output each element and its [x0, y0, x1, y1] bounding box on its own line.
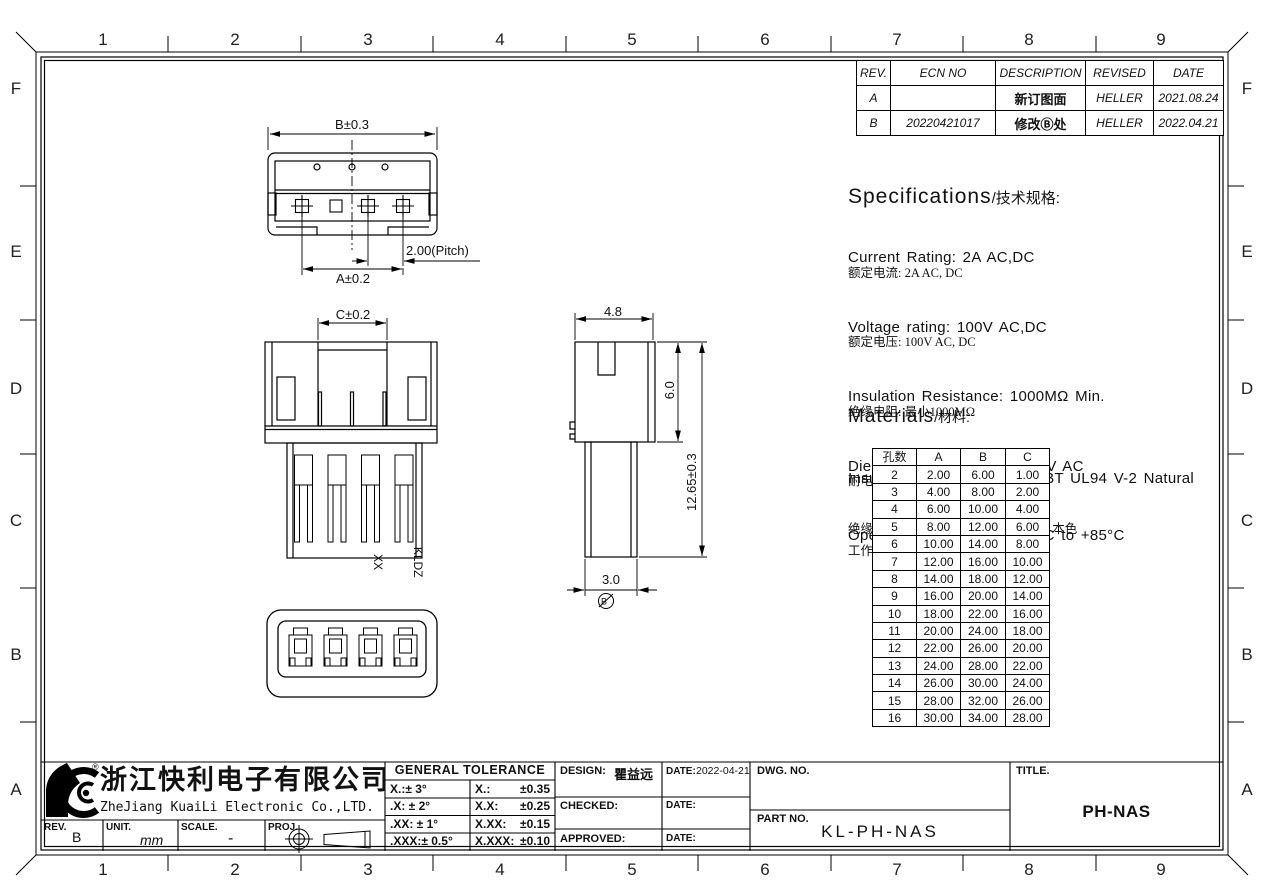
- cell: 14.00: [961, 535, 1006, 552]
- cell: 26.00: [917, 675, 961, 692]
- spec-cn: 额定电流: 2A AC, DC: [848, 267, 1243, 281]
- cell: 8: [873, 570, 917, 587]
- col-header: DATE: [1154, 61, 1224, 86]
- cell: 4.00: [1006, 501, 1050, 518]
- cell: [891, 86, 996, 111]
- zone-col-top: 2: [224, 31, 246, 50]
- cell: 2: [873, 466, 917, 483]
- cell: 34.00: [961, 709, 1006, 726]
- cell: 6.00: [1006, 518, 1050, 535]
- cell: 22.00: [961, 605, 1006, 622]
- tolerance-linear-value: ±0.35: [505, 783, 550, 796]
- zone-col-top: 3: [357, 31, 379, 50]
- design-value: 瞿益远: [614, 768, 653, 782]
- housing-mark-line2: XX: [371, 532, 384, 592]
- cell: 26.00: [1006, 692, 1050, 709]
- cell: 10: [873, 605, 917, 622]
- cell: 16.00: [961, 553, 1006, 570]
- table-row: 610.0014.008.00: [873, 535, 1050, 552]
- rev-label: REV.: [44, 822, 66, 833]
- dim-label-b: B±0.3: [322, 118, 382, 132]
- zone-col-bottom: 2: [224, 861, 246, 880]
- zone-col-top: 7: [886, 31, 908, 50]
- table-row: 1018.0022.0016.00: [873, 605, 1050, 622]
- table-row: 712.0016.0010.00: [873, 553, 1050, 570]
- cell: 14.00: [1006, 588, 1050, 605]
- zone-col-top: 9: [1150, 31, 1172, 50]
- cell: 12.00: [917, 553, 961, 570]
- proj-label: PROJ.: [268, 822, 298, 833]
- cell: 15: [873, 692, 917, 709]
- cell: A: [857, 86, 891, 111]
- cell: 24.00: [1006, 675, 1050, 692]
- company-name-en: ZheJiang KuaiLi Electronic Co.,LTD.: [100, 801, 374, 815]
- design-label: DESIGN:: [560, 765, 606, 777]
- zone-row-right: A: [1236, 781, 1258, 800]
- cell: 30.00: [961, 675, 1006, 692]
- cell: 2022.04.21: [1154, 111, 1224, 136]
- cell: 2.00: [1006, 483, 1050, 500]
- title-label: TITLE.: [1016, 765, 1050, 777]
- cell: 32.00: [961, 692, 1006, 709]
- design-date: 2022-04-21: [696, 766, 750, 778]
- tolerance-linear-label: X.:: [475, 783, 490, 796]
- drawing-title: PH-NAS: [1010, 803, 1223, 822]
- col-header: C: [1006, 449, 1050, 466]
- revision-table: REV. ECN NO DESCRIPTION REVISED DATE A 新…: [856, 60, 1224, 136]
- tolerance-angle: .XXX:± 0.5°: [390, 835, 453, 848]
- table-row: 34.008.002.00: [873, 483, 1050, 500]
- dim-label-c: C±0.2: [328, 308, 378, 322]
- zone-row-left: F: [5, 80, 27, 99]
- zone-col-top: 1: [92, 31, 114, 50]
- cell: 20.00: [917, 622, 961, 639]
- company-name-cn: 浙江快利电子有限公司: [100, 766, 390, 796]
- revision-row: A 新订图面 HELLER 2021.08.24: [857, 86, 1224, 111]
- tolerance-angle: .XX: ± 1°: [390, 818, 438, 831]
- dim-label-total-height: 12.65±0.3: [685, 442, 699, 522]
- housing-mark: KLDZ XX: [358, 532, 450, 592]
- zone-col-bottom: 6: [754, 861, 776, 880]
- col-header: B: [961, 449, 1006, 466]
- zone-row-left: E: [5, 243, 27, 262]
- cell: 20220421017: [891, 111, 996, 136]
- cell: HELLER: [1086, 86, 1154, 111]
- bottom-view-drawing: [267, 610, 437, 697]
- registered-mark: ®: [92, 763, 99, 773]
- drawing-sheet: B 1 2 3 4 5 6 7 8 9 1 2 3 4 5 6 7 8 9 F …: [0, 0, 1262, 892]
- spec-en: Current Rating: 2A AC,DC: [848, 250, 1243, 267]
- col-header: A: [917, 449, 961, 466]
- dim-label-a: A±0.2: [328, 272, 378, 286]
- col-header: REVISED: [1086, 61, 1154, 86]
- date-label: DATE:: [666, 833, 696, 844]
- spec-item: Current Rating: 2A AC,DC额定电流: 2A AC, DC: [848, 250, 1243, 280]
- cell: 16: [873, 709, 917, 726]
- tolerance-angle: .X: ± 2°: [390, 800, 430, 813]
- dim-label-top-width: 4.8: [598, 305, 628, 319]
- cell: 30.00: [917, 709, 961, 726]
- zone-row-left: C: [5, 512, 27, 531]
- cell: 2.00: [917, 466, 961, 483]
- date-label: DATE:: [666, 800, 696, 811]
- cell: 8.00: [917, 518, 961, 535]
- zone-col-bottom: 3: [357, 861, 379, 880]
- rev-value: B: [72, 830, 81, 845]
- zone-col-top: 4: [489, 31, 511, 50]
- zone-row-right: F: [1236, 80, 1258, 99]
- balloon-letter: B: [601, 597, 607, 607]
- cell: 2021.08.24: [1154, 86, 1224, 111]
- materials-title: Materials/材料:: [848, 407, 1248, 428]
- tolerance-linear-value: ±0.15: [505, 818, 550, 831]
- col-header: 孔数: [873, 449, 917, 466]
- zone-col-top: 5: [621, 31, 643, 50]
- table-row: 1324.0028.0022.00: [873, 657, 1050, 674]
- specs-title-en: Specifications: [848, 185, 992, 208]
- col-header: ECN NO: [891, 61, 996, 86]
- tolerance-angle: X.:± 3°: [390, 783, 427, 796]
- checked-label: CHECKED:: [560, 800, 618, 812]
- zone-col-bottom: 4: [489, 861, 511, 880]
- cell: 20.00: [1006, 640, 1050, 657]
- cell: 新订图面: [996, 86, 1086, 111]
- scale-label: SCALE.: [181, 822, 218, 833]
- dim-label-pitch: 2.00(Pitch): [406, 244, 486, 258]
- cell: 11: [873, 622, 917, 639]
- cell: 14.00: [917, 570, 961, 587]
- table-row: 58.0012.006.00: [873, 518, 1050, 535]
- zone-col-bottom: 5: [621, 861, 643, 880]
- tolerance-linear-label: X.XX:: [475, 818, 506, 831]
- cell: 28.00: [961, 657, 1006, 674]
- approved-label: APPROVED:: [560, 833, 625, 845]
- cell: 修改Ⓑ处: [996, 111, 1086, 136]
- cell: 16.00: [917, 588, 961, 605]
- cell: 4.00: [917, 483, 961, 500]
- materials-title-cn: /材料:: [934, 409, 970, 425]
- table-row: 1426.0030.0024.00: [873, 675, 1050, 692]
- cell: 5: [873, 518, 917, 535]
- cell: B: [857, 111, 891, 136]
- zone-col-top: 8: [1018, 31, 1040, 50]
- side-view-drawing: [570, 342, 655, 557]
- cell: 28.00: [917, 692, 961, 709]
- unit-value: mm: [140, 833, 163, 848]
- zone-col-bottom: 1: [92, 861, 114, 880]
- revision-row: B 20220421017 修改Ⓑ处 HELLER 2022.04.21: [857, 111, 1224, 136]
- cell: 6.00: [961, 466, 1006, 483]
- cell: 8.00: [1006, 535, 1050, 552]
- zone-col-bottom: 7: [886, 861, 908, 880]
- table-row: 916.0020.0014.00: [873, 588, 1050, 605]
- tolerance-header: GENERAL TOLERANCE: [385, 764, 555, 778]
- cell: 8.00: [961, 483, 1006, 500]
- table-row: 46.0010.004.00: [873, 501, 1050, 518]
- specifications-title: Specifications/技术规格:: [848, 185, 1243, 208]
- cell: 18.00: [917, 605, 961, 622]
- date-label: DATE:: [666, 766, 696, 777]
- cell: 22.00: [917, 640, 961, 657]
- cell: 22.00: [1006, 657, 1050, 674]
- table-row: 1528.0032.0026.00: [873, 692, 1050, 709]
- cell: HELLER: [1086, 111, 1154, 136]
- spec-en: Voltage rating: 100V AC,DC: [848, 320, 1243, 337]
- table-row: 1630.0034.0028.00: [873, 709, 1050, 726]
- table-row: 814.0018.0012.00: [873, 570, 1050, 587]
- cell: 28.00: [1006, 709, 1050, 726]
- cell: 6: [873, 535, 917, 552]
- cell: 26.00: [961, 640, 1006, 657]
- cell: 12.00: [961, 518, 1006, 535]
- cell: 12: [873, 640, 917, 657]
- col-header: REV.: [857, 61, 891, 86]
- cell: 12.00: [1006, 570, 1050, 587]
- part-no-value: KL-PH-NAS: [790, 823, 970, 842]
- scale-value: -: [228, 830, 233, 848]
- cell: 24.00: [961, 622, 1006, 639]
- cell: 18.00: [961, 570, 1006, 587]
- zone-col-bottom: 8: [1018, 861, 1040, 880]
- spec-item: Voltage rating: 100V AC,DC额定电压: 100V AC,…: [848, 320, 1243, 350]
- zone-col-top: 6: [754, 31, 776, 50]
- tolerance-linear-value: ±0.25: [505, 800, 550, 813]
- zone-row-left: A: [5, 781, 27, 800]
- table-row: 22.006.001.00: [873, 466, 1050, 483]
- table-row: 1120.0024.0018.00: [873, 622, 1050, 639]
- tolerance-linear-value: ±0.10: [505, 835, 550, 848]
- cell: 10.00: [917, 535, 961, 552]
- cell: 3: [873, 483, 917, 500]
- cell: 18.00: [1006, 622, 1050, 639]
- cell: 13: [873, 657, 917, 674]
- dimension-lines: [268, 127, 707, 596]
- dim-label-upper-height: 6.0: [663, 375, 677, 405]
- tolerance-linear-label: X.X:: [475, 800, 498, 813]
- col-header: DESCRIPTION: [996, 61, 1086, 86]
- cell: 24.00: [917, 657, 961, 674]
- cell: 6.00: [917, 501, 961, 518]
- table-row: 1222.0026.0020.00: [873, 640, 1050, 657]
- front-view-drawing: [265, 342, 437, 558]
- cell: 1.00: [1006, 466, 1050, 483]
- revision-balloon: B: [599, 594, 614, 609]
- cell: 4: [873, 501, 917, 518]
- zone-row-right: B: [1236, 646, 1258, 665]
- spec-cn: 额定电压: 100V AC, DC: [848, 336, 1243, 350]
- top-view-drawing: [268, 140, 437, 250]
- cell: 10.00: [961, 501, 1006, 518]
- materials-title-en: Materials: [848, 406, 934, 427]
- specs-title-cn: /技术规格:: [992, 190, 1060, 207]
- cell: 16.00: [1006, 605, 1050, 622]
- cell: 14: [873, 675, 917, 692]
- cell: 10.00: [1006, 553, 1050, 570]
- unit-label: UNIT.: [106, 822, 131, 833]
- dwg-no-label: DWG. NO.: [757, 765, 810, 777]
- cell: 20.00: [961, 588, 1006, 605]
- zone-row-left: B: [5, 646, 27, 665]
- dimension-table: 孔数 A B C 22.006.001.00 34.008.002.00 46.…: [872, 448, 1050, 727]
- company-logo: [46, 763, 97, 817]
- housing-mark-line1: KLDZ: [411, 532, 424, 592]
- zone-col-bottom: 9: [1150, 861, 1172, 880]
- zone-row-left: D: [5, 380, 27, 399]
- dim-label-leg-width: 3.0: [596, 573, 626, 587]
- cell: 7: [873, 553, 917, 570]
- cell: 9: [873, 588, 917, 605]
